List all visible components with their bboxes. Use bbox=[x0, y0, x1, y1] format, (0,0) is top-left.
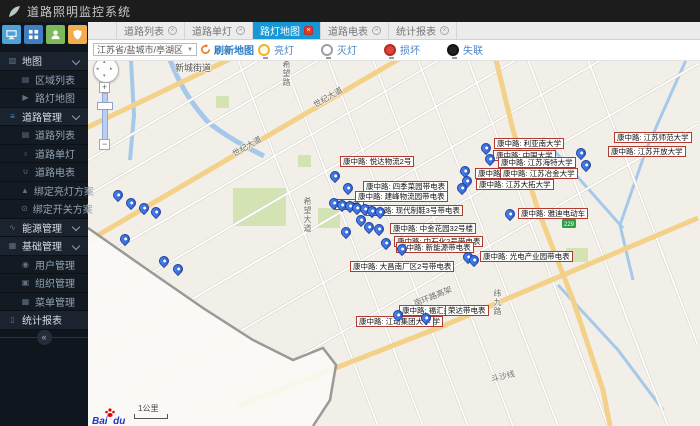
sidebar-section-道路管理[interactable]: ≡道路管理 bbox=[0, 108, 88, 127]
tab-close-icon[interactable]: × bbox=[236, 26, 245, 35]
road-meter-icon: ∪ bbox=[21, 167, 30, 176]
menu-label: 道路管理 bbox=[22, 109, 62, 124]
zoom-slider-handle[interactable] bbox=[97, 102, 113, 110]
legend-label: 灭灯 bbox=[337, 42, 357, 57]
legend-label: 亮灯 bbox=[274, 42, 294, 57]
menu-management-icon: ▦ bbox=[21, 297, 30, 306]
lamp-point-label[interactable]: 康中路: 江苏冶金大学 bbox=[500, 168, 578, 179]
app-logo-leaf-icon bbox=[8, 5, 21, 18]
svg-text:Bai du: Bai du bbox=[92, 416, 125, 426]
lamp-point-label[interactable]: 康中路: 中金花园32号楼 bbox=[390, 223, 476, 234]
menu-label: 道路电表 bbox=[35, 164, 75, 179]
lamp-status-legend: 亮灯灭灯损坏失联 bbox=[258, 42, 510, 57]
chevron-down-icon bbox=[72, 112, 80, 120]
menu-label: 地图 bbox=[22, 53, 42, 68]
legend-灭灯[interactable]: 灭灯 bbox=[321, 42, 357, 57]
tab-道路列表[interactable]: 道路列表× bbox=[116, 22, 185, 39]
app-title: 道路照明监控系统 bbox=[27, 3, 131, 20]
lamp-point-label[interactable]: 康中路: 江苏海特大学 bbox=[498, 157, 576, 168]
legend-失联[interactable]: 失联 bbox=[447, 42, 483, 57]
sidebar-menu: ▧地图▤区域列表▶路灯地图≡道路管理▤道路列表♁道路单灯∪道路电表▲绑定亮灯方案… bbox=[0, 52, 88, 330]
tab-close-icon[interactable]: × bbox=[304, 26, 313, 35]
baidu-logo[interactable]: Bai du bbox=[92, 407, 134, 426]
divider bbox=[52, 337, 89, 338]
lamp-point-label[interactable]: 康中路: 新能源带电表 bbox=[396, 242, 474, 253]
tab-label: 路灯地图 bbox=[260, 23, 300, 38]
chevron-down-icon: ▼ bbox=[187, 47, 193, 53]
region-list-icon: ▤ bbox=[21, 75, 30, 84]
tab-label: 道路单灯 bbox=[192, 23, 232, 38]
menu-label: 绑定开关方案 bbox=[33, 201, 93, 216]
road-management-icon: ≡ bbox=[8, 112, 17, 121]
bulb-icon bbox=[384, 44, 396, 56]
lamp-point-label[interactable]: 康中路: 江苏大拓大学 bbox=[476, 179, 554, 190]
menu-label: 区域列表 bbox=[35, 72, 75, 87]
lamp-point-label[interactable]: 康中路: 建峰物流园带电表 bbox=[355, 191, 448, 202]
map-icon: ▧ bbox=[8, 56, 17, 65]
sidebar-section-地图[interactable]: ▧地图 bbox=[0, 52, 88, 71]
lamp-point-label[interactable]: 康中路: 大昌南厂区2号带电表 bbox=[350, 261, 454, 272]
legend-label: 损坏 bbox=[400, 42, 420, 57]
app-window: { "app": { "title": "道路照明监控系统" }, "theme… bbox=[0, 0, 700, 426]
map-scale-label: 1公里 bbox=[138, 403, 158, 414]
bulb-icon bbox=[258, 44, 270, 56]
menu-label: 道路列表 bbox=[35, 127, 75, 142]
bulb-icon bbox=[321, 44, 333, 56]
lamp-point-label[interactable]: 康中路: 江苏师范大学 bbox=[614, 132, 692, 143]
sidebar-item-道路电表[interactable]: ∪道路电表 bbox=[0, 163, 88, 182]
organization-management-icon: ▣ bbox=[21, 278, 30, 287]
lamp-point-label[interactable]: 康中路: 江苏开放大学 bbox=[608, 146, 686, 157]
tab-道路单灯[interactable]: 道路单灯× bbox=[185, 22, 253, 39]
map-scale-bar bbox=[134, 414, 168, 419]
lamp-point-label[interactable]: 康中路: 雅迪电动车 bbox=[518, 208, 588, 219]
road-name-label: 新城街道 bbox=[175, 61, 211, 74]
switch-plan-icon: ⊙ bbox=[21, 204, 28, 213]
quick-buttons bbox=[2, 25, 87, 44]
menu-label: 统计报表 bbox=[22, 312, 62, 327]
tab-道路电表[interactable]: 道路电表× bbox=[321, 22, 389, 39]
tab-label: 道路电表 bbox=[328, 23, 368, 38]
lamp-point-label[interactable]: 荣达带电表 bbox=[445, 305, 489, 316]
lamp-point-label[interactable]: 康中路: 利亚南大学 bbox=[494, 138, 564, 149]
region-select-value: 江苏省/盐城市/亭湖区 bbox=[97, 43, 183, 56]
map-toolbar: 江苏省/盐城市/亭湖区 ▼ 刷新地图 亮灯灭灯损坏失联 bbox=[88, 40, 700, 61]
sidebar: ▧地图▤区域列表▶路灯地图≡道路管理▤道路列表♁道路单灯∪道路电表▲绑定亮灯方案… bbox=[0, 22, 88, 426]
lamp-point-label[interactable]: 康中路: 悦达物流2号 bbox=[340, 156, 414, 167]
zoom-slider-track[interactable] bbox=[102, 93, 108, 141]
refresh-map-button[interactable]: 刷新地图 bbox=[200, 42, 254, 57]
tab-close-icon[interactable]: × bbox=[168, 26, 177, 35]
shield-button[interactable] bbox=[68, 25, 87, 44]
basic-management-icon: ▦ bbox=[8, 241, 17, 250]
statistics-report-icon: ▯ bbox=[8, 315, 17, 324]
menu-label: 组织管理 bbox=[35, 275, 75, 290]
title-bar: 道路照明监控系统 bbox=[0, 0, 700, 22]
road-name-label: 希望路 bbox=[281, 60, 292, 87]
pan-right-icon[interactable]: ▸ bbox=[110, 66, 113, 72]
legend-label: 失联 bbox=[463, 42, 483, 57]
sidebar-item-绑定开关方案[interactable]: ⊙绑定开关方案 bbox=[0, 200, 88, 219]
energy-management-icon: ∿ bbox=[8, 223, 17, 232]
tab-label: 统计报表 bbox=[396, 23, 436, 38]
legend-亮灯[interactable]: 亮灯 bbox=[258, 42, 294, 57]
chevron-down-icon bbox=[72, 57, 80, 65]
tab-统计报表[interactable]: 统计报表× bbox=[389, 22, 457, 39]
road-lamp-icon: ♁ bbox=[21, 149, 30, 158]
sidebar-section-统计报表[interactable]: ▯统计报表 bbox=[0, 311, 88, 330]
sidebar-item-路灯地图[interactable]: ▶路灯地图 bbox=[0, 89, 88, 108]
sidebar-item-组织管理[interactable]: ▣组织管理 bbox=[0, 274, 88, 293]
refresh-map-label: 刷新地图 bbox=[214, 42, 254, 57]
grid-button[interactable] bbox=[24, 25, 43, 44]
sidebar-item-区域列表[interactable]: ▤区域列表 bbox=[0, 71, 88, 90]
menu-label: 菜单管理 bbox=[35, 294, 75, 309]
chevron-down-icon bbox=[72, 223, 80, 231]
sidebar-item-用户管理[interactable]: ◉用户管理 bbox=[0, 256, 88, 275]
tab-close-icon[interactable]: × bbox=[372, 26, 381, 35]
tab-bar: 道路列表×道路单灯×路灯地图×道路电表×统计报表× bbox=[88, 22, 700, 40]
lighting-plan-icon: ▲ bbox=[21, 186, 29, 195]
legend-损坏[interactable]: 损坏 bbox=[384, 42, 420, 57]
monitor-button[interactable] bbox=[2, 25, 21, 44]
sidebar-item-道路单灯[interactable]: ♁道路单灯 bbox=[0, 145, 88, 164]
divider bbox=[0, 337, 37, 338]
road-shield: 229 bbox=[562, 219, 576, 228]
chevron-down-icon bbox=[72, 242, 80, 250]
menu-label: 用户管理 bbox=[35, 257, 75, 272]
sidebar-collapse-button[interactable]: « bbox=[37, 330, 52, 345]
user-management-icon: ◉ bbox=[21, 260, 30, 269]
tab-label: 道路列表 bbox=[124, 23, 164, 38]
sidebar-item-道路列表[interactable]: ▤道路列表 bbox=[0, 126, 88, 145]
pan-down-icon[interactable]: ▾ bbox=[103, 73, 106, 79]
tab-close-icon[interactable]: × bbox=[440, 26, 449, 35]
user-button[interactable] bbox=[46, 25, 65, 44]
road-name-label: 纬九路 bbox=[492, 289, 503, 316]
map-canvas[interactable]: 229 ▴ ▾ ◂ ▸ + − 1公里 Bai du 新城街道希望路世纪大道世纪… bbox=[88, 60, 700, 426]
sidebar-item-菜单管理[interactable]: ▦菜单管理 bbox=[0, 293, 88, 312]
menu-label: 绑定亮灯方案 bbox=[34, 183, 94, 198]
streetlamp-map-icon: ▶ bbox=[21, 93, 30, 102]
zoom-out-button[interactable]: − bbox=[99, 139, 110, 150]
sidebar-section-能源管理[interactable]: ∿能源管理 bbox=[0, 219, 88, 238]
bulb-icon bbox=[447, 44, 459, 56]
sidebar-section-基础管理[interactable]: ▦基础管理 bbox=[0, 237, 88, 256]
menu-label: 能源管理 bbox=[22, 220, 62, 235]
refresh-icon bbox=[200, 44, 211, 55]
menu-label: 路灯地图 bbox=[35, 90, 75, 105]
svg-text:229: 229 bbox=[564, 222, 575, 228]
menu-label: 基础管理 bbox=[22, 238, 62, 253]
region-select[interactable]: 江苏省/盐城市/亭湖区 ▼ bbox=[93, 43, 197, 56]
sidebar-collapse-row: « bbox=[0, 328, 88, 346]
pan-left-icon[interactable]: ◂ bbox=[96, 66, 99, 72]
tab-路灯地图[interactable]: 路灯地图× bbox=[253, 22, 321, 39]
menu-label: 道路单灯 bbox=[35, 146, 75, 161]
sidebar-item-绑定亮灯方案[interactable]: ▲绑定亮灯方案 bbox=[0, 182, 88, 201]
road-list-icon: ▤ bbox=[21, 130, 30, 139]
road-name-label: 希望大道 bbox=[302, 197, 313, 233]
lamp-point-label[interactable]: 康中路: 光电产业园带电表 bbox=[480, 251, 573, 262]
zoom-in-button[interactable]: + bbox=[99, 82, 110, 93]
